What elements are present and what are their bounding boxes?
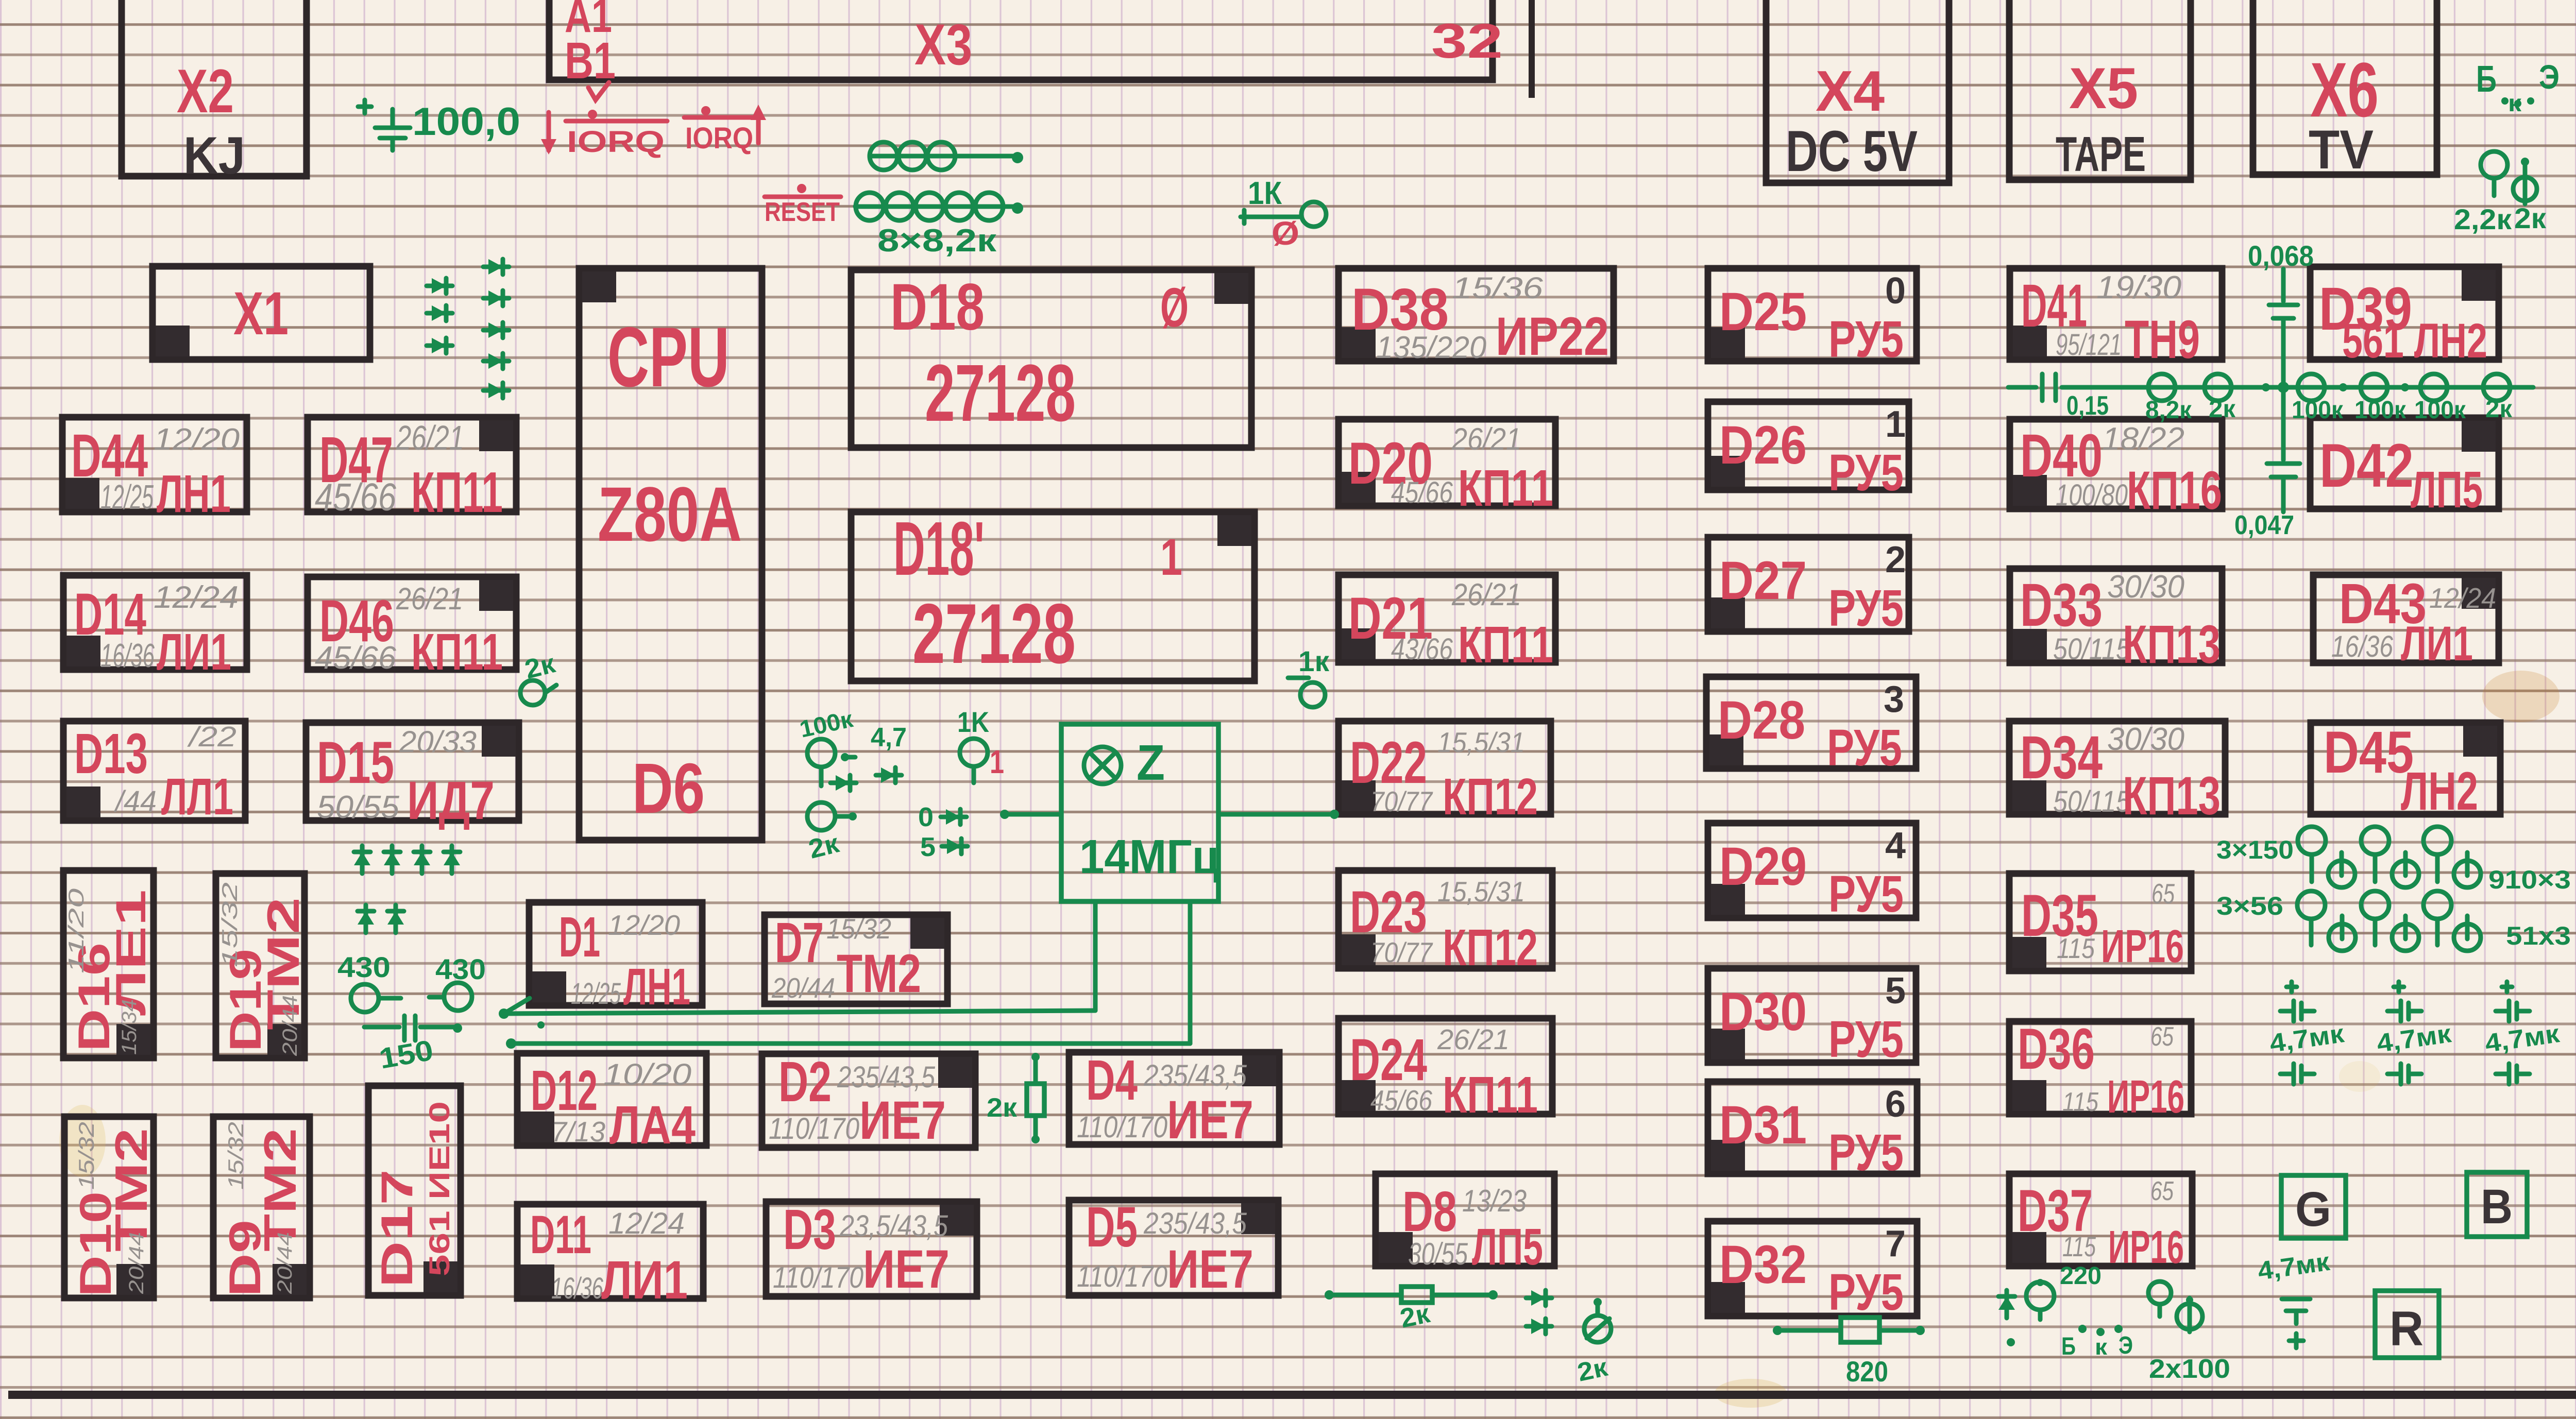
svg-text:ИД7: ИД7: [407, 771, 495, 831]
svg-text:20/44: 20/44: [771, 972, 835, 1004]
svg-text:D18: D18: [890, 270, 985, 344]
svg-text:ЛИ1: ЛИ1: [601, 1250, 688, 1310]
svg-text:D3: D3: [783, 1198, 836, 1261]
svg-text:115: 115: [2062, 1230, 2096, 1262]
svg-text:КП12: КП12: [1443, 768, 1538, 826]
svg-text:D6: D6: [632, 749, 705, 828]
svg-text:50/55: 50/55: [317, 790, 400, 825]
svg-text:135/220: 135/220: [1376, 330, 1486, 365]
svg-text:2к: 2к: [2209, 396, 2236, 423]
svg-text:RESET: RESET: [765, 197, 840, 227]
svg-text:26/21: 26/21: [1437, 1023, 1510, 1055]
svg-text:18/22: 18/22: [2102, 421, 2184, 457]
svg-text:КП13: КП13: [2123, 766, 2221, 826]
svg-text:КП13: КП13: [2123, 614, 2221, 675]
svg-text:0: 0: [1885, 270, 1906, 312]
svg-text:D33: D33: [2020, 571, 2103, 639]
svg-text:D25: D25: [1719, 282, 1807, 342]
svg-text:ИЕ7: ИЕ7: [863, 1239, 950, 1300]
svg-text:1: 1: [990, 743, 1004, 780]
svg-text:TAPE: TAPE: [2056, 127, 2146, 182]
svg-text:45/66: 45/66: [1391, 476, 1453, 509]
svg-text:1к: 1к: [1298, 645, 1330, 677]
svg-text:ИР16: ИР16: [2101, 921, 2184, 972]
svg-text:820: 820: [1846, 1355, 1888, 1388]
svg-text:D29: D29: [1719, 836, 1807, 897]
svg-text:D27: D27: [1719, 551, 1807, 611]
svg-text:220: 220: [2060, 1262, 2102, 1290]
svg-text:110/170: 110/170: [769, 1112, 859, 1146]
svg-text:2к: 2к: [987, 1093, 1018, 1123]
svg-text:65: 65: [2150, 1022, 2174, 1052]
svg-text:13/23: 13/23: [1462, 1184, 1527, 1218]
svg-text:26/21: 26/21: [396, 582, 463, 616]
svg-text:ЛП5: ЛП5: [1472, 1218, 1543, 1276]
svg-text:3×150: 3×150: [2216, 835, 2294, 864]
svg-text:D23: D23: [1350, 879, 1427, 945]
svg-text:14МГц: 14МГц: [1079, 830, 1219, 883]
svg-text:50/115: 50/115: [2053, 785, 2131, 818]
svg-text:20/44: 20/44: [274, 1232, 296, 1294]
svg-text:65: 65: [2151, 878, 2175, 910]
svg-text:115: 115: [2062, 1087, 2099, 1117]
svg-text:7: 7: [1885, 1223, 1906, 1264]
svg-text:30/30: 30/30: [2107, 569, 2184, 605]
svg-text:20/44: 20/44: [125, 1232, 148, 1294]
svg-text:20/33: 20/33: [399, 725, 477, 759]
svg-text:1К: 1К: [1248, 176, 1282, 211]
svg-text:100к: 100к: [2292, 397, 2344, 424]
svg-text:2,2к: 2,2к: [2454, 203, 2512, 235]
svg-text:к: к: [2508, 90, 2522, 116]
svg-text:D17: D17: [372, 1169, 422, 1288]
svg-text:D26: D26: [1719, 415, 1807, 475]
svg-text:15/36: 15/36: [1452, 271, 1544, 305]
svg-text:ЛА4: ЛА4: [609, 1095, 696, 1155]
svg-text:0,15: 0,15: [2066, 391, 2109, 421]
svg-text:6: 6: [1885, 1084, 1906, 1125]
svg-text:РУ5: РУ5: [1828, 579, 1904, 637]
svg-text:430: 430: [435, 953, 486, 985]
svg-text:X1: X1: [233, 280, 289, 348]
svg-text:ИЕ7: ИЕ7: [859, 1090, 946, 1151]
svg-text:7/13: 7/13: [551, 1116, 605, 1148]
svg-text:2к: 2к: [2485, 396, 2513, 423]
svg-text:30/55: 30/55: [1408, 1237, 1468, 1271]
svg-text:27128: 27128: [925, 348, 1076, 438]
svg-text:IORQ: IORQ: [567, 125, 665, 159]
svg-text:ЛН1: ЛН1: [623, 958, 690, 1016]
svg-text:45/66: 45/66: [315, 640, 397, 676]
svg-text:KJ: KJ: [183, 126, 245, 185]
svg-text:X2: X2: [177, 57, 234, 126]
svg-text:Ø: Ø: [1160, 276, 1189, 338]
svg-text:Э: Э: [2539, 58, 2560, 96]
svg-text:12/20: 12/20: [154, 422, 240, 456]
svg-text:ИР22: ИР22: [1496, 306, 1609, 367]
svg-text:1K: 1K: [957, 706, 989, 738]
svg-text:КП11: КП11: [1458, 616, 1553, 674]
svg-text:ЛИ1: ЛИ1: [2401, 617, 2473, 671]
svg-text:16/36: 16/36: [551, 1272, 604, 1305]
svg-text:КП11: КП11: [411, 460, 503, 524]
svg-text:4: 4: [1885, 825, 1906, 866]
svg-text:100,0: 100,0: [412, 100, 520, 144]
svg-text:1: 1: [1160, 528, 1182, 586]
svg-text:15/34: 15/34: [118, 999, 141, 1055]
svg-text:910×3: 910×3: [2488, 865, 2571, 894]
svg-text:2х100: 2х100: [2149, 1354, 2230, 1384]
svg-text:12/25: 12/25: [100, 478, 154, 517]
svg-text:10/20: 10/20: [603, 1058, 691, 1091]
svg-text:15/32: 15/32: [224, 1122, 248, 1190]
svg-text:Э: Э: [2119, 1332, 2133, 1359]
svg-text:D31: D31: [1719, 1095, 1807, 1155]
svg-text:Z80A: Z80A: [598, 471, 742, 557]
svg-text:45/66: 45/66: [1370, 1084, 1432, 1116]
svg-text:100к: 100к: [2354, 397, 2406, 424]
svg-text:D45: D45: [2324, 720, 2414, 785]
svg-text:100/80: 100/80: [2056, 478, 2128, 512]
svg-text:B: B: [2481, 1179, 2513, 1234]
svg-text:к: к: [2095, 1335, 2108, 1360]
svg-text:Б: Б: [2061, 1333, 2076, 1360]
svg-text:ЛН2: ЛН2: [2401, 761, 2478, 822]
svg-text:D34: D34: [2020, 724, 2103, 792]
svg-text:1: 1: [1885, 404, 1906, 445]
svg-text:115: 115: [2057, 932, 2095, 964]
svg-text:2к: 2к: [2514, 202, 2547, 234]
svg-text:110/170: 110/170: [1077, 1260, 1167, 1293]
svg-text:ЛН1: ЛН1: [157, 464, 231, 523]
svg-text:ТМ2: ТМ2: [837, 944, 921, 1004]
svg-text:12/24: 12/24: [608, 1207, 685, 1240]
svg-text:D13: D13: [74, 722, 148, 785]
svg-text:ЛЕ1: ЛЕ1: [108, 890, 155, 1016]
svg-text:15,5/31: 15,5/31: [1437, 726, 1525, 758]
svg-text:R: R: [2389, 1302, 2424, 1356]
svg-text:ТН9: ТН9: [2125, 310, 2200, 370]
svg-text:D5: D5: [1086, 1195, 1138, 1259]
svg-text:0: 0: [918, 802, 934, 832]
svg-text:12/25: 12/25: [571, 977, 621, 1011]
svg-text:0,068: 0,068: [2248, 240, 2314, 272]
svg-text:8×8,2к: 8×8,2к: [877, 223, 997, 259]
svg-text:РУ5: РУ5: [1828, 444, 1904, 502]
svg-text:ИЕ7: ИЕ7: [1167, 1239, 1253, 1300]
svg-text:5: 5: [1885, 970, 1906, 1012]
svg-text:D1: D1: [559, 905, 600, 969]
svg-text:561 ЛН2: 561 ЛН2: [2342, 314, 2487, 368]
svg-text:110/170: 110/170: [1077, 1110, 1167, 1144]
svg-text:РУ5: РУ5: [1828, 1124, 1904, 1182]
svg-text:РУ5: РУ5: [1827, 719, 1902, 777]
svg-text:23,5/43,5: 23,5/43,5: [839, 1209, 948, 1243]
svg-text:X3: X3: [914, 12, 972, 77]
svg-text:TV: TV: [2309, 118, 2374, 180]
svg-text:/22: /22: [187, 721, 236, 753]
svg-text:235/43,5: 235/43,5: [837, 1061, 935, 1094]
svg-text:D7: D7: [775, 911, 824, 975]
svg-text:КП11: КП11: [411, 623, 503, 681]
svg-text:45/66: 45/66: [315, 475, 396, 519]
svg-text:95/121: 95/121: [2056, 328, 2122, 362]
svg-text:26/21: 26/21: [1451, 422, 1521, 456]
svg-text:110/170: 110/170: [773, 1261, 863, 1294]
svg-text:65: 65: [2150, 1176, 2174, 1206]
svg-text:15/32: 15/32: [826, 913, 891, 945]
svg-text:430: 430: [337, 951, 391, 983]
svg-text:КП11: КП11: [1458, 459, 1553, 517]
svg-text:D8: D8: [1402, 1180, 1457, 1243]
svg-text:D2: D2: [778, 1050, 832, 1114]
svg-text:235/43,5: 235/43,5: [1143, 1059, 1247, 1092]
svg-text:15,5/31: 15,5/31: [1437, 876, 1525, 908]
svg-text:3×56: 3×56: [2216, 892, 2283, 920]
svg-text:Z: Z: [1137, 734, 1165, 791]
svg-text:ЛЛ1: ЛЛ1: [161, 768, 233, 826]
svg-text:15/32: 15/32: [217, 882, 242, 967]
svg-text:D4: D4: [1086, 1049, 1138, 1112]
svg-text:CPU: CPU: [607, 310, 730, 404]
svg-text:D30: D30: [1719, 982, 1807, 1042]
svg-text:ИР16: ИР16: [2108, 1222, 2184, 1273]
svg-text:26/21: 26/21: [1451, 577, 1521, 612]
svg-text:X5: X5: [2069, 56, 2138, 121]
svg-text:15/32: 15/32: [74, 1122, 98, 1190]
svg-text:12/24: 12/24: [2429, 582, 2496, 614]
svg-text:ЛИ1: ЛИ1: [157, 623, 231, 681]
svg-text:11/20: 11/20: [64, 888, 88, 973]
svg-text:27128: 27128: [912, 586, 1076, 681]
svg-text:235/43,5: 235/43,5: [1143, 1207, 1247, 1240]
svg-text:КП12: КП12: [1443, 919, 1538, 977]
svg-text:РУ5: РУ5: [1828, 865, 1904, 923]
svg-text:DC 5V: DC 5V: [1786, 119, 1918, 183]
svg-text:50/115: 50/115: [2053, 632, 2131, 666]
svg-text:D24: D24: [1350, 1027, 1427, 1093]
svg-text:19/30: 19/30: [2096, 270, 2181, 305]
svg-text:2: 2: [1885, 539, 1906, 580]
svg-text:РУ5: РУ5: [1828, 1011, 1904, 1068]
svg-text:РУ5: РУ5: [1828, 1263, 1904, 1321]
svg-text:4,7: 4,7: [871, 723, 907, 753]
svg-text:43/66: 43/66: [1391, 632, 1453, 666]
svg-text:G: G: [2295, 1182, 2331, 1237]
svg-text:32: 32: [1431, 14, 1503, 69]
svg-text:D28: D28: [1718, 690, 1805, 750]
svg-text:D42: D42: [2319, 431, 2414, 500]
svg-text:/44: /44: [113, 785, 157, 818]
svg-text:D12: D12: [531, 1059, 598, 1122]
svg-text:КП16: КП16: [2127, 460, 2222, 521]
svg-text:IORQ: IORQ: [685, 122, 753, 155]
svg-text:70/77: 70/77: [1370, 785, 1433, 817]
svg-text:26/21: 26/21: [396, 419, 464, 457]
svg-text:20/44: 20/44: [279, 995, 301, 1056]
svg-text:16/36: 16/36: [2331, 630, 2394, 663]
svg-text:Ø: Ø: [1272, 215, 1299, 252]
svg-text:D11: D11: [530, 1205, 591, 1265]
svg-text:Б: Б: [2476, 59, 2497, 100]
svg-text:8,2к: 8,2к: [2145, 397, 2192, 424]
svg-text:3: 3: [1884, 679, 1904, 720]
svg-text:30/30: 30/30: [2107, 722, 2184, 757]
svg-text:D18': D18': [893, 506, 985, 591]
svg-text:КП11: КП11: [1443, 1066, 1538, 1124]
svg-text:51х3: 51х3: [2506, 921, 2571, 950]
svg-text:D36: D36: [2018, 1017, 2095, 1081]
svg-text:РУ5: РУ5: [1828, 311, 1904, 368]
svg-text:16/36: 16/36: [100, 637, 155, 674]
svg-text:12/24: 12/24: [154, 580, 239, 614]
svg-text:100к: 100к: [2414, 397, 2466, 424]
svg-text:12/20: 12/20: [608, 909, 680, 941]
svg-text:561 ИЕ10: 561 ИЕ10: [423, 1101, 455, 1276]
svg-text:D15: D15: [317, 730, 394, 796]
svg-text:ИЕ7: ИЕ7: [1167, 1090, 1253, 1150]
svg-text:70/77: 70/77: [1370, 936, 1433, 968]
svg-text:X4: X4: [1816, 59, 1885, 123]
svg-text:ЛП5: ЛП5: [2411, 461, 2483, 519]
svg-text:D32: D32: [1719, 1235, 1807, 1295]
svg-text:0,047: 0,047: [2234, 510, 2294, 540]
svg-text:ИР16: ИР16: [2107, 1071, 2184, 1123]
svg-text:5: 5: [920, 832, 936, 862]
